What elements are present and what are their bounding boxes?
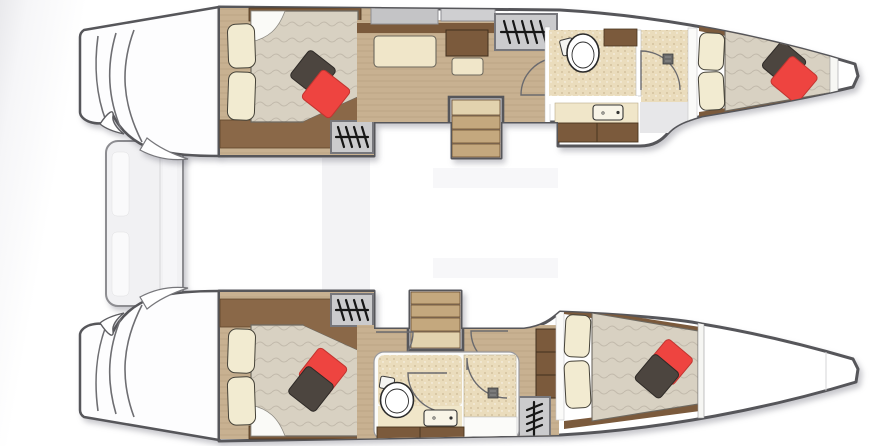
vanity-cabinets <box>557 123 638 142</box>
port-passageway <box>357 2 558 159</box>
sofa-seat <box>374 36 436 67</box>
shower-stall <box>464 355 516 417</box>
port-hull <box>219 2 858 159</box>
wardrobe-locker <box>441 2 495 21</box>
pillow <box>227 72 256 121</box>
starboard-head <box>374 352 519 440</box>
counter <box>464 417 517 438</box>
starboard-aft-cabin <box>220 292 375 439</box>
washbasin <box>593 105 623 120</box>
desk <box>446 30 488 56</box>
shower-drain <box>488 388 498 398</box>
berth-base <box>220 299 333 327</box>
port-aft-cabin <box>220 8 375 155</box>
vanity-shelf <box>604 29 637 46</box>
pillow <box>698 32 725 70</box>
bulkhead <box>688 28 697 132</box>
pillow <box>564 360 591 408</box>
stern-steps-starboard <box>80 287 219 440</box>
stern-steps-port <box>80 7 219 160</box>
hatch-steps-icon <box>519 397 550 440</box>
hatch-steps-icon <box>331 294 373 326</box>
cockpit-ghost <box>322 158 558 290</box>
berth-footboard <box>830 52 838 96</box>
starboard-hull <box>219 288 858 441</box>
platform-cushion <box>112 232 129 296</box>
port-head <box>545 27 697 142</box>
pillow <box>698 71 725 110</box>
bulkhead <box>556 307 564 420</box>
platform-step <box>163 150 177 297</box>
transom-platform <box>106 141 183 306</box>
berth-footboard <box>698 320 704 418</box>
shower-drain <box>663 54 673 64</box>
stool <box>452 58 483 75</box>
companionway-stairs <box>408 288 463 350</box>
hatch-steps-icon <box>331 121 373 153</box>
pillow <box>564 314 591 357</box>
berth-base <box>220 120 333 148</box>
pillow <box>227 377 256 426</box>
floor-plan-svg <box>0 0 890 446</box>
companionway-stairs <box>449 97 503 159</box>
pillow <box>227 329 256 374</box>
platform-cushion <box>112 152 129 216</box>
pillow <box>227 24 256 69</box>
shower-tray <box>640 102 689 133</box>
washbasin <box>424 410 457 426</box>
wardrobe-shelves <box>536 329 557 398</box>
floor-plan-stage <box>0 0 890 446</box>
wardrobe-locker <box>371 3 438 24</box>
